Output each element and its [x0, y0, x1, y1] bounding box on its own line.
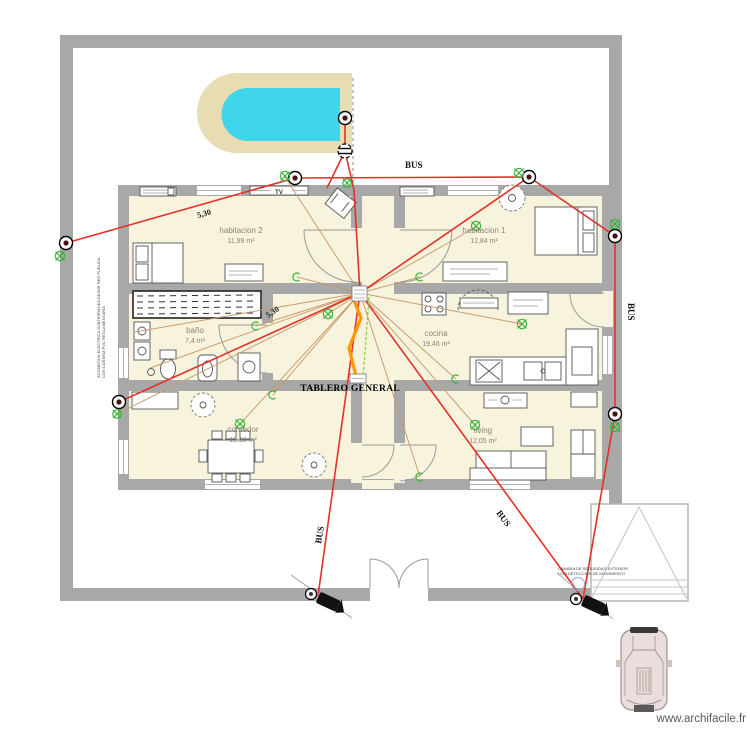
garage[interactable] [591, 504, 688, 601]
camera-note-line2: CON DETECCION DE MOVIMIENTO [558, 571, 625, 576]
ac-unit-hab2[interactable] [140, 187, 176, 196]
tv-label: TV [275, 190, 283, 196]
tv-cabinet-living[interactable] [484, 393, 527, 408]
bus-label-diag-right: BUS [494, 508, 512, 528]
device-node [609, 230, 622, 243]
car-roof-rack [630, 627, 658, 633]
room-area-hab1: 12,84 m² [470, 238, 498, 245]
panel-box[interactable] [350, 374, 366, 383]
room-area-comedor: 12,18 m² [229, 437, 257, 444]
ceiling-fan-comedor-2[interactable] [302, 453, 326, 477]
room-label-bano: baño [186, 326, 204, 335]
opening-house-rear [362, 480, 394, 489]
kitchen-island[interactable] [470, 357, 572, 385]
room-area-cocina: 19,46 m² [422, 341, 450, 348]
pool-device-icon[interactable] [339, 112, 352, 125]
room-label-hab1: habitacion 1 [462, 226, 506, 235]
stove-icon[interactable] [422, 293, 446, 315]
floorplan-svg: habitacion 2 11,99 m² habitacion 1 12,84… [0, 0, 750, 750]
pool-water [222, 88, 340, 141]
car-top-view[interactable] [616, 627, 672, 712]
bed-hab1[interactable] [535, 207, 597, 255]
pool-pump-icon[interactable] [338, 144, 352, 158]
sofa[interactable] [470, 451, 546, 480]
window-bano-left [119, 348, 128, 378]
panel-label: TABLERO GENERAL [300, 384, 400, 394]
fridge-label-box[interactable] [508, 292, 548, 314]
left-note: ACOMETIDA ELECTRICA SUBTERRANEA DESDE RE… [96, 257, 106, 378]
wall-unit-living[interactable] [571, 430, 595, 478]
window-comedor-left [119, 440, 128, 474]
watermark: www.archifacile.fr [656, 713, 747, 725]
coffee-table[interactable] [521, 427, 553, 446]
nightstand-hab2[interactable] [225, 264, 263, 281]
device-node [609, 408, 622, 421]
bus-label-right: BUS [626, 303, 636, 321]
floorplan-canvas: habitacion 2 11,99 m² habitacion 1 12,84… [0, 0, 750, 750]
bed-hab2[interactable] [133, 243, 183, 283]
bus-label-diag-left: BUS [313, 525, 326, 544]
desk-hab1[interactable] [443, 262, 507, 281]
room-label-living: living [474, 426, 492, 435]
ceiling-fan-comedor-1[interactable] [191, 393, 215, 417]
light-icon [514, 168, 523, 177]
swimming-pool[interactable] [197, 73, 352, 153]
device-node [60, 237, 73, 250]
sink-bano-icon[interactable] [238, 353, 260, 381]
room-area-hab2: 11,99 m² [227, 238, 255, 245]
left-note-line2: CON CAÑERIA PVC REGLAMENTARIA [101, 306, 106, 378]
room-label-comedor: comedor [227, 425, 258, 434]
room-area-living: 12,05 m² [469, 438, 497, 445]
room-label-hab2: habitacion 2 [219, 226, 263, 235]
shelf-living[interactable] [571, 392, 597, 407]
door-entrance-double [370, 559, 428, 601]
device-node [113, 396, 126, 409]
camera-note: CAMARA DE SEGURIDAD EXTERIOR CON DETECCI… [558, 566, 628, 576]
dryer-icon[interactable] [134, 342, 150, 360]
room-label-cocina: cocina [424, 329, 448, 338]
ac-unit-hab1[interactable] [400, 187, 434, 196]
bus-label-top: BUS [405, 160, 423, 170]
window-hab2-top [197, 186, 241, 195]
device-node [523, 171, 536, 184]
room-area-bano: 7,4 m² [185, 338, 206, 345]
car-bumper [634, 705, 654, 712]
device-node [289, 172, 302, 185]
toilet-icon[interactable] [160, 350, 176, 379]
kitchen-counter-right[interactable] [566, 329, 598, 385]
window-cocina-right [603, 336, 612, 374]
window-hab1-top [448, 186, 498, 195]
junction-box-main[interactable] [352, 286, 367, 301]
